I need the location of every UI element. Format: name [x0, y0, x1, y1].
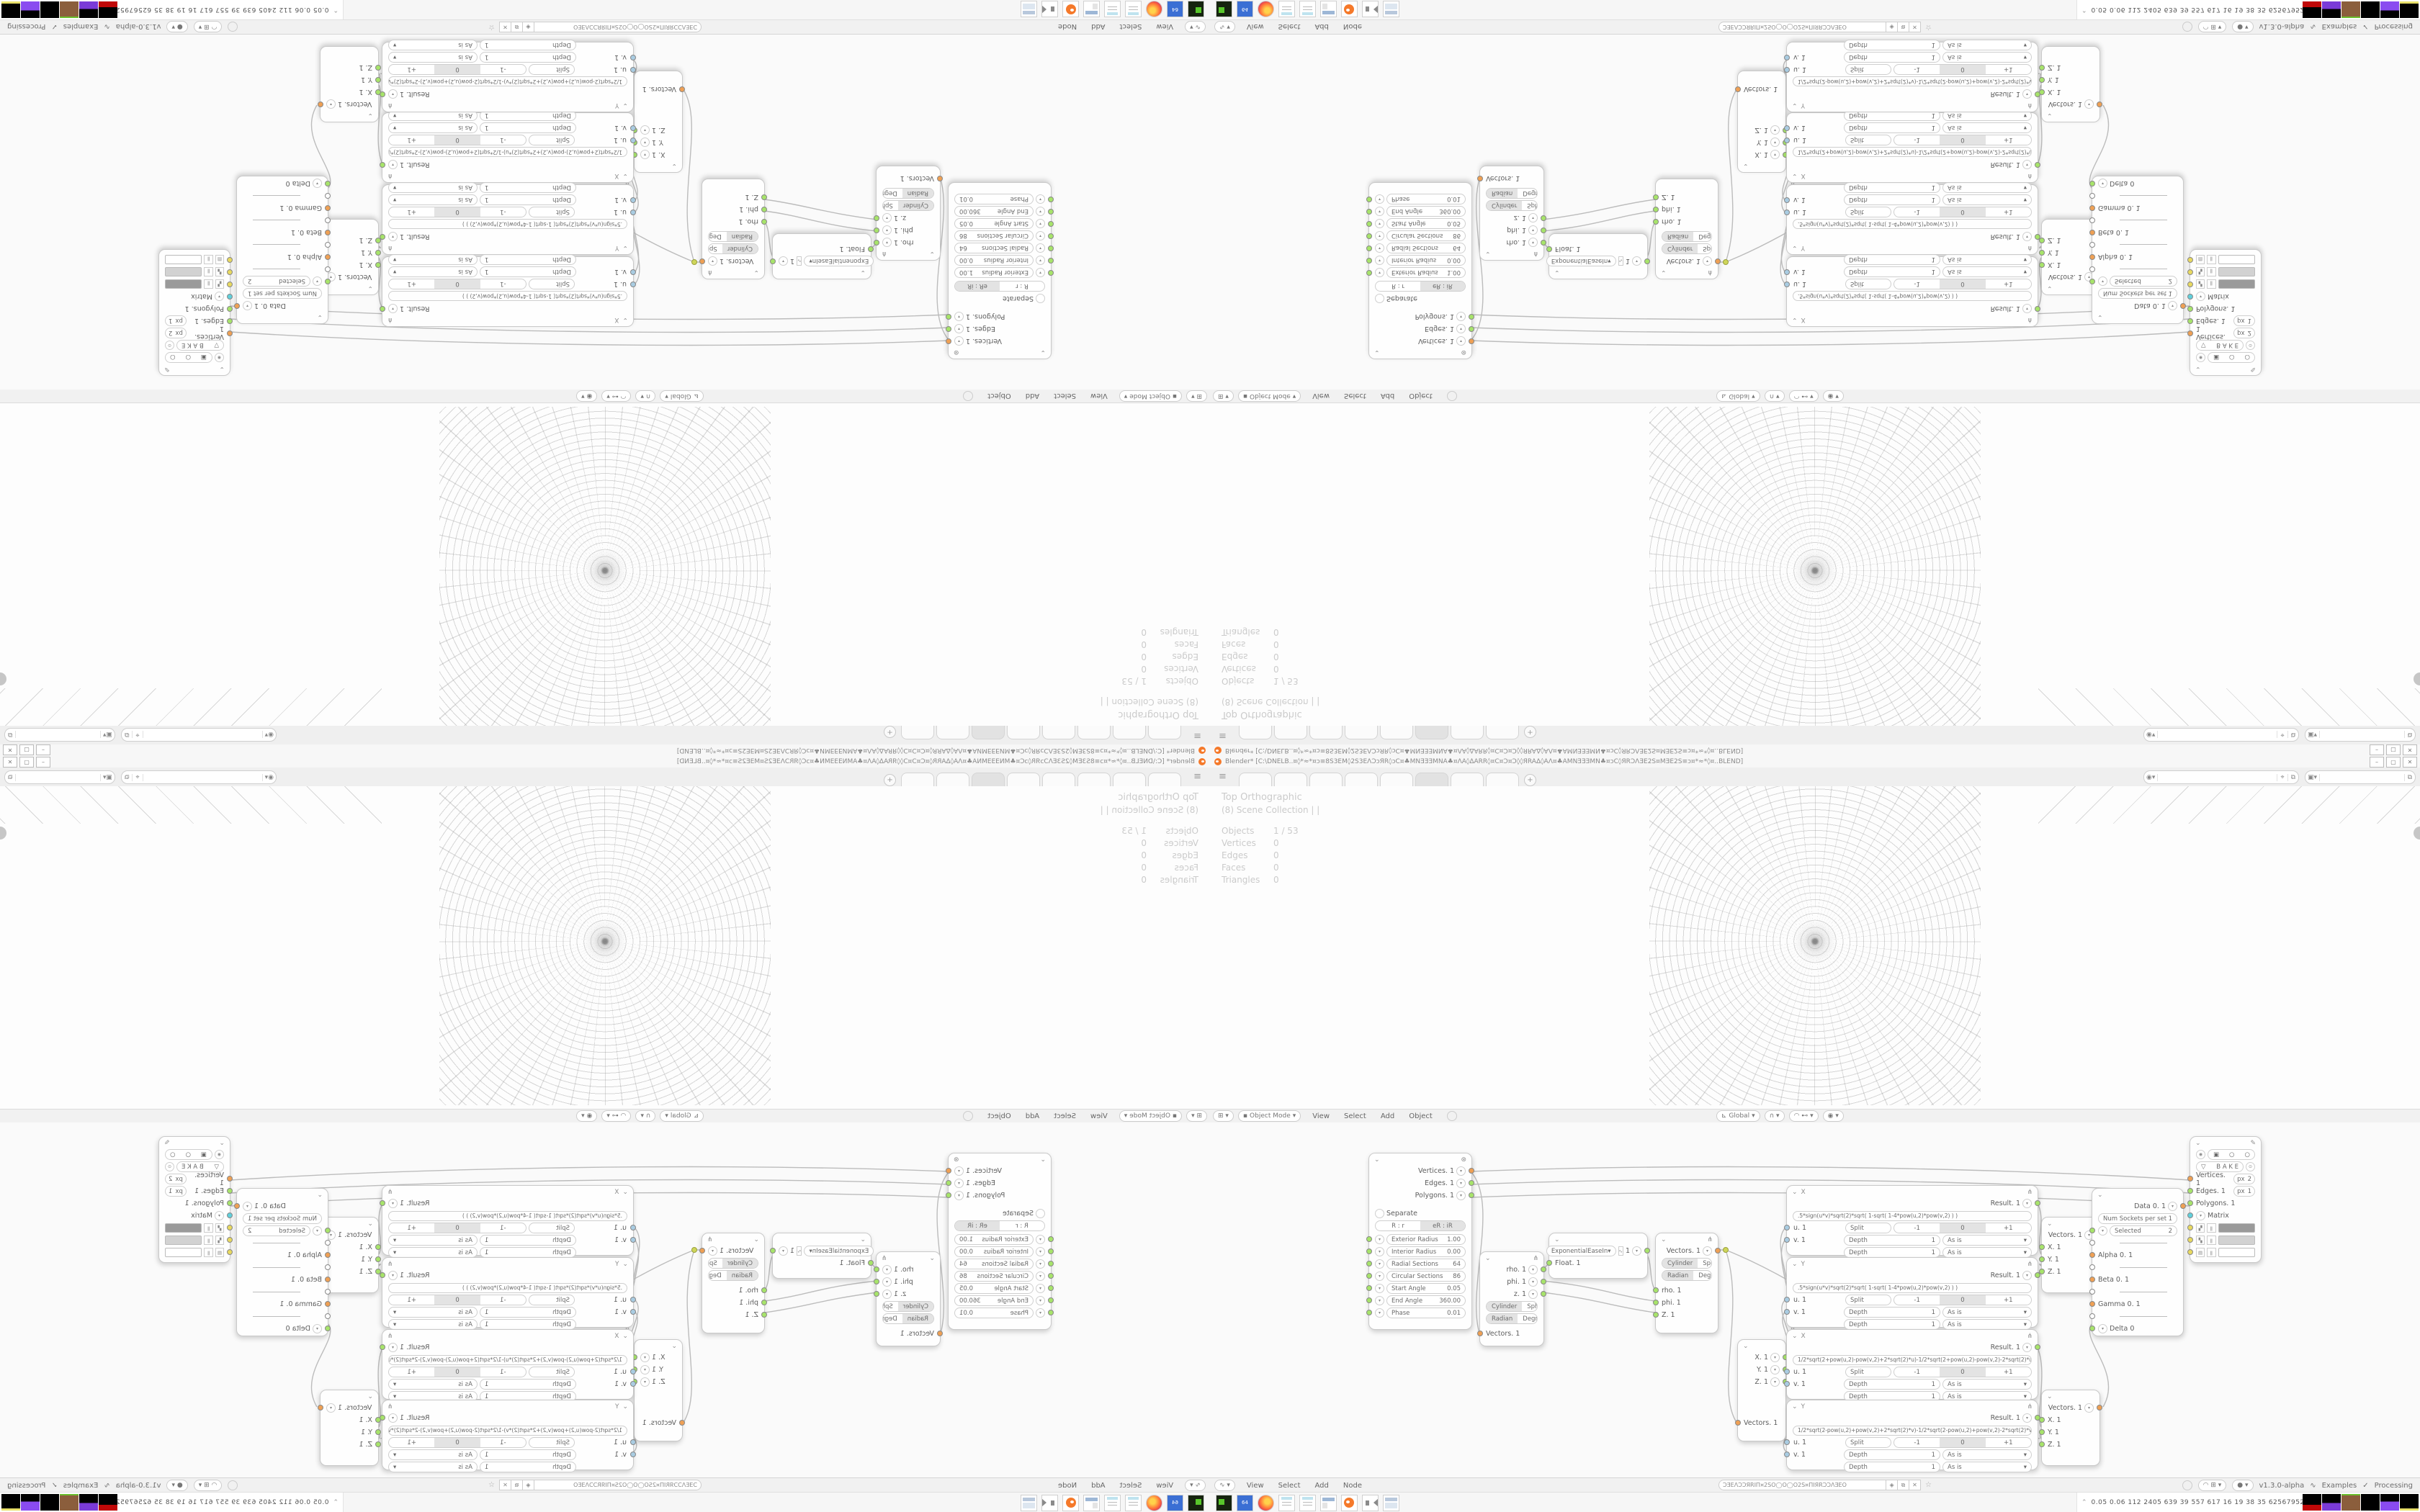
histogram-thumb[interactable] — [2322, 1494, 2341, 1511]
node-socket[interactable] — [1048, 1236, 1054, 1242]
node-socket[interactable] — [1477, 1331, 1483, 1336]
minimize-button[interactable]: – — [2370, 757, 2384, 768]
depth-field[interactable]: Depth1 — [480, 1449, 576, 1460]
socket-menu-button[interactable]: ▾ — [388, 89, 398, 99]
value-stepper[interactable]: ▾ — [1036, 1235, 1045, 1244]
viewport-3d[interactable]: Top Orthographic (8) Scene Collection | … — [0, 786, 1210, 1109]
copy-icon[interactable]: ⧉ — [122, 732, 133, 739]
face-color-icon[interactable]: ▤ — [215, 255, 224, 264]
node-socket[interactable] — [2039, 77, 2045, 83]
socket-menu-button[interactable]: ▾ — [779, 256, 788, 266]
value-stepper[interactable]: ▾ — [1036, 268, 1045, 277]
node-socket[interactable] — [2187, 1200, 2193, 1206]
sidebar-toggle[interactable] — [0, 827, 6, 840]
node-vector-join-b[interactable]: ⌄ Vectors. 1▾ X. 1 Y. 1 Z. 1 — [320, 1390, 379, 1466]
node-socket[interactable] — [2039, 1441, 2045, 1447]
node-socket[interactable] — [1469, 1192, 1474, 1198]
node-socket[interactable] — [325, 266, 331, 272]
depth-field[interactable]: Depth1 — [1844, 1462, 1940, 1472]
torus-param[interactable]: Exterior Radius1.00 — [954, 1234, 1034, 1245]
node-socket[interactable] — [318, 1405, 323, 1410]
node-socket[interactable] — [2039, 262, 2045, 268]
node-socket[interactable] — [1469, 338, 1474, 344]
depth-field[interactable]: Depth1 — [480, 266, 576, 277]
display-mode-buttons[interactable]: ▣○○⌂ — [165, 1149, 212, 1160]
shield-icon[interactable]: ◈ — [522, 22, 534, 32]
menu-view[interactable]: View — [1312, 392, 1330, 400]
edge-width-field[interactable]: px1 — [2233, 315, 2255, 326]
node-socket[interactable] — [1366, 1248, 1372, 1254]
socket-menu-button[interactable]: ▾ — [1770, 138, 1780, 147]
editor-type-button[interactable]: ⊞ ▾ — [1213, 1110, 1234, 1122]
gizmo-toggle[interactable]: ◉ ▾ — [576, 390, 597, 402]
depth-field[interactable]: Depth1 — [480, 1247, 576, 1258]
node-tree-selector[interactable]: ƆƎEΛƆƆЯRIΠ¤2SO◯O◯O2S¤ΠIЯRƆƆΛƎEO ◈ ⧉ ✕ ☆ — [1718, 22, 1932, 32]
node-socket[interactable] — [1366, 221, 1372, 227]
node-formula-y1[interactable]: ⌄Y⋔ Result. 1▾ .5*sign(u*v)*sqrt(2)*sqrt… — [382, 184, 634, 255]
node-socket[interactable] — [380, 1200, 385, 1206]
wrap-dropdown[interactable]: As is▾ — [388, 1449, 478, 1460]
gear-icon[interactable]: ⊛ — [954, 1156, 959, 1164]
split-toggle[interactable]: Split — [1845, 1437, 1891, 1448]
split-toggle[interactable]: Split — [1845, 207, 1891, 217]
workspace-tab[interactable] — [1486, 773, 1519, 787]
node-socket[interactable] — [1653, 1300, 1659, 1305]
node-socket[interactable] — [380, 1344, 385, 1350]
node-socket[interactable] — [630, 269, 636, 275]
viewlayer-selector[interactable]: ▣▾ ⧉ — [4, 770, 115, 784]
workspace-tab[interactable] — [936, 725, 969, 739]
torus-param[interactable]: Interior Radius0.00 — [1386, 255, 1466, 266]
taskbar-media-icon[interactable] — [1383, 1, 1399, 17]
collapse-chevron-icon[interactable]: ⌄ — [1792, 1333, 1798, 1340]
taskbar-floppy-icon[interactable]: 64 — [1167, 1, 1183, 17]
minimize-button[interactable]: – — [36, 744, 50, 755]
taskbar-notepad-icon[interactable] — [1104, 1, 1121, 17]
node-socket[interactable] — [630, 197, 636, 203]
menu-add[interactable]: Add — [1381, 392, 1394, 400]
pin-icon[interactable]: ⌖ — [2277, 732, 2287, 739]
edge-width-field[interactable]: px1 — [2233, 1186, 2255, 1197]
socket-menu-button[interactable]: ▾ — [2084, 1403, 2094, 1413]
menu-select[interactable]: Select — [1119, 1482, 1142, 1490]
search-circle-icon[interactable] — [963, 391, 973, 401]
node-socket[interactable] — [2035, 162, 2040, 168]
socket-menu-button[interactable]: ▾ — [954, 1166, 964, 1176]
menu-view[interactable]: View — [1156, 1482, 1173, 1490]
coord-mode-switch[interactable]: CylinderSphere — [1662, 243, 1712, 254]
depth-field[interactable]: Depth1 — [1844, 1379, 1940, 1390]
node-socket[interactable] — [630, 1225, 636, 1230]
torus-param[interactable]: End Angle360.00 — [1386, 206, 1466, 217]
point-size-field[interactable]: px2 — [2233, 328, 2255, 338]
histogram-thumb[interactable] — [2341, 1, 2360, 18]
wrap-dropdown[interactable]: As is▾ — [388, 122, 478, 133]
node-socket[interactable] — [2089, 1240, 2095, 1246]
node-socket[interactable] — [1784, 1309, 1790, 1315]
curve-icon[interactable]: ∿ — [1618, 1246, 1623, 1256]
taskbar-blender-icon[interactable] — [1062, 1495, 1079, 1511]
depth-field[interactable]: Depth1 — [480, 194, 576, 205]
pin-icon[interactable]: ☆ — [1925, 23, 1932, 31]
node-socket[interactable] — [1653, 1287, 1659, 1293]
node-socket[interactable] — [2187, 1176, 2193, 1182]
node-socket[interactable] — [1469, 1180, 1474, 1186]
value-stepper[interactable]: ▾ — [215, 292, 224, 301]
list-icon[interactable]: ǁ — [205, 279, 213, 289]
node-socket[interactable] — [325, 205, 331, 211]
node-socket[interactable] — [2089, 205, 2095, 211]
histogram-thumb[interactable] — [1, 1494, 20, 1511]
add-workspace-button[interactable]: + — [1524, 774, 1536, 786]
socket-menu-button[interactable]: ▾ — [1703, 256, 1712, 266]
angle-mode-switch[interactable]: RadianDegree — [1486, 1313, 1538, 1324]
collapse-chevron-icon[interactable]: ⌄ — [317, 314, 323, 321]
depth-field[interactable]: Depth1 — [480, 52, 576, 63]
node-socket[interactable] — [1541, 215, 1546, 221]
close-button[interactable]: ✕ — [2403, 757, 2417, 768]
collapse-chevron-icon[interactable]: ⌄ — [1374, 1156, 1380, 1164]
angle-mode-switch[interactable]: RadianDegree — [882, 1313, 934, 1324]
collapse-chevron-icon[interactable]: ⌄ — [1743, 1343, 1749, 1350]
editor-type-button[interactable]: ∿ ▾ — [1185, 1480, 1206, 1491]
node-socket[interactable] — [1469, 1168, 1474, 1174]
value-stepper[interactable]: ▾ — [1036, 207, 1045, 216]
taskbar-notepad-icon[interactable] — [1278, 1, 1295, 17]
viewlayer-selector[interactable]: ▣▾ ⧉ — [2305, 728, 2416, 742]
display-mode-buttons[interactable]: ▣○○⌂ — [2208, 1149, 2255, 1160]
socket-menu-button[interactable]: ▾ — [243, 1202, 252, 1211]
taskbar-firefox-icon[interactable] — [1146, 1495, 1162, 1511]
collapse-chevron-icon[interactable]: ⌄ — [753, 269, 759, 276]
node-socket[interactable] — [770, 1248, 776, 1254]
examples-label[interactable]: Examples — [63, 23, 99, 31]
scene-selector[interactable]: ◉▾ ⌖ ⧉ — [2143, 770, 2299, 784]
axis-segment[interactable]: -10+1 — [1894, 1437, 2032, 1448]
node-socket[interactable] — [874, 1266, 879, 1272]
copy-icon[interactable]: ⧉ — [2287, 774, 2298, 781]
viewport-3d[interactable]: Top Orthographic (8) Scene Collection | … — [1210, 786, 2420, 1109]
node-formula-y1[interactable]: ⌄Y⋔ Result. 1▾ .5*sign(u*v)*sqrt(2)*sqrt… — [382, 1257, 634, 1328]
separate-toggle[interactable] — [1036, 294, 1045, 303]
node-socket[interactable] — [375, 77, 381, 83]
node-socket[interactable] — [1653, 1312, 1659, 1318]
workspace-tab[interactable] — [1007, 773, 1040, 787]
node-list-input[interactable]: ⌄ Data 0. 1▾ Num Sockets per set1 ▾Selec… — [2092, 176, 2184, 324]
collapse-chevron-icon[interactable]: ⌄ — [622, 1189, 628, 1196]
node-viewer-draw[interactable]: ⌄✎ ◉▣○○⌂ ▽B A K E⊙ Vertices. 1px2 Edges.… — [158, 1136, 230, 1263]
node-socket[interactable] — [2187, 1249, 2193, 1255]
node-socket[interactable] — [1048, 1310, 1054, 1315]
menu-view[interactable]: View — [1090, 392, 1108, 400]
socket-menu-button[interactable]: ▾ — [640, 150, 650, 159]
node-socket[interactable] — [630, 67, 636, 73]
node-socket[interactable] — [227, 282, 233, 287]
node-socket[interactable] — [874, 215, 879, 221]
num-sockets-field[interactable]: Num Sockets per set1 — [243, 288, 322, 299]
node-socket[interactable] — [1048, 270, 1054, 276]
depth-field[interactable]: Depth1 — [1844, 1307, 1940, 1318]
taskbar-blender-icon[interactable] — [1341, 1, 1358, 17]
coord-mode-switch[interactable]: CylinderSphere — [1486, 200, 1538, 211]
node-formula-x2[interactable]: ⌄X⋔ Result. 1▾ 1/2*sqrt(2+pow(u,2)-pow(v… — [382, 112, 634, 183]
node-easing[interactable]: ⌄ ExponentialEaseIn▾∿1▾ Float. 1 — [1549, 1233, 1648, 1279]
menu-view[interactable]: View — [1312, 1112, 1330, 1120]
copy-icon[interactable]: ⧉ — [2287, 732, 2298, 739]
node-socket[interactable] — [630, 138, 636, 143]
face-color-icon[interactable]: ▤ — [215, 1248, 224, 1257]
socket-menu-button[interactable]: ▾ — [708, 256, 717, 266]
node-socket[interactable] — [630, 1452, 636, 1457]
display-mode-buttons[interactable]: ▣○○⌂ — [2208, 352, 2255, 363]
histogram-thumb[interactable] — [1, 1, 20, 18]
search-circle-icon[interactable] — [963, 1111, 973, 1121]
node-vector-split[interactable]: ⌄ X. 1▾ Y. 1▾ Z. 1▾ Vectors. 1 — [634, 71, 683, 173]
node-socket[interactable] — [679, 1420, 685, 1426]
value-stepper[interactable]: ▾ — [1036, 231, 1045, 240]
node-socket[interactable] — [2187, 282, 2193, 287]
angle-mode-switch[interactable]: RadianDegree — [1486, 188, 1538, 199]
node-socket[interactable] — [1653, 207, 1659, 212]
socket-menu-button[interactable]: ▾ — [2168, 1202, 2177, 1211]
node-formula-x2[interactable]: ⌄X⋔ Result. 1▾ 1/2*sqrt(2+pow(u,2)-pow(v… — [1786, 112, 2038, 183]
torus-param[interactable]: Circular Sections86 — [954, 1271, 1034, 1282]
depth-field[interactable]: Depth1 — [480, 1235, 576, 1246]
value-stepper[interactable]: ▾ — [2196, 292, 2205, 301]
list-icon[interactable]: ǁ — [2207, 1248, 2215, 1257]
collapse-chevron-icon[interactable]: ⌄ — [622, 173, 628, 180]
viewlayer-selector[interactable]: ▣▾ ⧉ — [4, 728, 115, 742]
separate-toggle[interactable] — [1036, 1209, 1045, 1218]
num-sockets-field[interactable]: Num Sockets per set1 — [2098, 1213, 2177, 1224]
wrap-dropdown[interactable]: As is▾ — [1942, 40, 2032, 50]
value-stepper[interactable]: ▾ — [2098, 1324, 2107, 1333]
wrap-dropdown[interactable]: As is▾ — [388, 40, 478, 50]
depth-field[interactable]: Depth1 — [1844, 52, 1940, 63]
gizmo-toggle[interactable]: ◉ ▾ — [1823, 390, 1844, 402]
collapse-chevron-icon[interactable]: ⌄ — [622, 1261, 628, 1268]
node-socket[interactable] — [1546, 1260, 1552, 1266]
gear-icon[interactable]: ⊛ — [954, 349, 959, 356]
point-size-field[interactable]: px2 — [165, 328, 187, 338]
node-socket[interactable] — [1048, 1261, 1054, 1266]
formula-field[interactable]: 1/2*sqrt(2+pow(u,2)-pow(v,2)+2*sqrt(2)*u… — [1793, 1355, 2032, 1365]
node-socket[interactable] — [2187, 257, 2193, 263]
socket-menu-button[interactable]: ▾ — [2168, 301, 2177, 310]
node-socket[interactable] — [380, 162, 385, 168]
collapse-chevron-icon[interactable]: ⌄ — [1792, 1261, 1798, 1268]
value-stepper[interactable]: ▾ — [1036, 256, 1045, 265]
value-stepper[interactable]: ▾ — [1036, 1284, 1045, 1293]
workspace-tab[interactable] — [1345, 725, 1378, 739]
torus-param[interactable]: Start Angle0.05 — [954, 1283, 1034, 1294]
socket-menu-button[interactable]: ▾ — [882, 238, 892, 247]
node-tree-selector[interactable]: ƆƎEΛƆƆЯRIΠ¤2SO◯O◯O2S¤ΠIЯRƆƆΛƎEO ◈ ⧉ ✕ ☆ — [488, 1480, 702, 1490]
node-torus[interactable]: ⌄⊛ Vertices. 1▾ Edges. 1▾ Polygons. 1▾ S… — [948, 182, 1052, 359]
menu-select[interactable]: Select — [1344, 392, 1366, 400]
value-stepper[interactable]: ▾ — [1036, 1308, 1045, 1318]
add-workspace-button[interactable]: + — [884, 726, 896, 738]
pin-icon[interactable]: ⌖ — [2277, 774, 2287, 781]
wrap-dropdown[interactable]: As is▾ — [388, 1319, 478, 1330]
node-socket[interactable] — [1541, 1266, 1546, 1272]
collapse-chevron-icon[interactable]: ⌄ — [219, 366, 225, 373]
scene-selector[interactable]: ◉▾ ⌖ ⧉ — [121, 728, 277, 742]
workspace-tab[interactable] — [1309, 773, 1343, 787]
taskbar-window-icon[interactable] — [1083, 1, 1100, 17]
axis-segment[interactable]: -10+1 — [1894, 207, 2032, 217]
wrap-dropdown[interactable]: As is▾ — [1942, 1247, 2032, 1258]
node-socket[interactable] — [2035, 1200, 2040, 1206]
socket-menu-button[interactable]: ▾ — [388, 160, 398, 169]
status-circle-icon[interactable] — [2182, 1480, 2192, 1490]
node-formula-y2[interactable]: ⌄Y⋔ Result. 1▾ 1/2*sqrt(2-pow(u,2)+pow(v… — [1786, 42, 2038, 112]
node-socket[interactable] — [2097, 102, 2102, 107]
node-socket[interactable] — [1541, 228, 1546, 233]
socket-menu-button[interactable]: ▾ — [1528, 1277, 1538, 1287]
collapse-chevron-icon[interactable]: ⌄ — [1554, 1236, 1560, 1243]
mode-selector[interactable]: ▪ Object Mode ▾ — [1119, 390, 1182, 402]
coord-mode-switch[interactable]: CylinderSphere — [882, 1301, 934, 1312]
face-color-swatch[interactable] — [165, 255, 202, 264]
add-workspace-button[interactable]: + — [884, 774, 896, 786]
depth-field[interactable]: Depth1 — [1844, 266, 1940, 277]
histogram-thumb[interactable] — [2361, 1494, 2380, 1511]
angle-mode-switch[interactable]: RadianDegree — [708, 231, 758, 242]
node-socket[interactable] — [2089, 242, 2095, 248]
viewport-3d[interactable]: Top Orthographic (8) Scene Collection | … — [0, 403, 1210, 726]
socket-menu-button[interactable]: ▾ — [882, 225, 892, 235]
torus-param[interactable]: Phase0.01 — [954, 1308, 1034, 1318]
torus-param[interactable]: Exterior Radius1.00 — [954, 267, 1034, 278]
torus-param[interactable]: Circular Sections86 — [954, 230, 1034, 241]
node-socket[interactable] — [679, 86, 685, 92]
edge-width-field[interactable]: px1 — [165, 1186, 187, 1197]
bake-button[interactable]: ▽B A K E — [2196, 340, 2244, 351]
workspace-tab[interactable] — [1113, 725, 1146, 739]
list-icon[interactable]: ǁ — [205, 267, 213, 276]
value-stepper[interactable]: ▾ — [1375, 219, 1384, 228]
node-vector-polar-in[interactable]: ⌄⋔ Vectors. 1▾ CylinderSphere RadianDegr… — [702, 1233, 765, 1333]
value-stepper[interactable]: ▾ — [1036, 194, 1045, 204]
node-socket[interactable] — [2039, 1429, 2045, 1435]
taskbar-floppy-icon[interactable]: 64 — [1167, 1495, 1183, 1511]
node-socket[interactable] — [2187, 306, 2193, 312]
list-icon[interactable]: ǁ — [2207, 279, 2215, 289]
vertex-color-icon[interactable]: ▞ — [215, 279, 224, 289]
formula-field[interactable]: 1/2*sqrt(2-pow(u,2)+pow(v,2)+2*sqrt(2)*v… — [1793, 77, 2032, 87]
node-socket[interactable] — [1366, 1261, 1372, 1266]
torus-param[interactable]: Circular Sections86 — [1386, 230, 1466, 241]
orientation-selector[interactable]: ⊾ Global ▾ — [1716, 1110, 1760, 1122]
collapse-chevron-icon[interactable]: ⌄ — [2195, 366, 2201, 373]
workspace-tab[interactable] — [1309, 725, 1343, 739]
node-socket[interactable] — [227, 294, 233, 300]
socket-menu-button[interactable]: ▾ — [2084, 99, 2094, 109]
collapse-chevron-icon[interactable]: ⌄ — [2195, 1140, 2201, 1147]
node-socket[interactable] — [2089, 1252, 2095, 1258]
node-socket[interactable] — [375, 1244, 381, 1250]
workspace-tab[interactable] — [1451, 725, 1484, 739]
value-stepper[interactable]: ▾ — [1375, 1235, 1384, 1244]
node-socket[interactable] — [2089, 1277, 2095, 1282]
value-stepper[interactable]: ▾ — [2196, 1211, 2205, 1220]
split-toggle[interactable]: Split — [529, 1367, 575, 1377]
socket-menu-button[interactable]: ▾ — [2022, 232, 2032, 241]
viewlayer-selector[interactable]: ▣▾ ⧉ — [2305, 770, 2416, 784]
depth-field[interactable]: Depth1 — [1844, 1449, 1940, 1460]
node-socket[interactable] — [1784, 210, 1790, 215]
node-socket[interactable] — [234, 1203, 240, 1209]
node-socket[interactable] — [227, 257, 233, 263]
collapse-chevron-icon[interactable]: ⌄ — [860, 269, 866, 276]
split-toggle[interactable]: Split — [529, 207, 575, 217]
axis-segment[interactable]: -10+1 — [388, 1437, 526, 1448]
proportional-edit-toggle[interactable]: ◠ ⊷ ▾ — [601, 1110, 631, 1122]
depth-field[interactable]: Depth1 — [1844, 1319, 1940, 1330]
status-circle-icon[interactable] — [228, 22, 238, 32]
node-socket[interactable] — [227, 318, 233, 324]
socket-menu-button[interactable]: ▾ — [882, 1277, 892, 1287]
menu-add[interactable]: Add — [1091, 1482, 1105, 1490]
coord-mode-switch[interactable]: CylinderSphere — [1662, 1258, 1712, 1269]
value-stepper[interactable]: ▾ — [313, 276, 322, 286]
node-formula-y2[interactable]: ⌄Y⋔ Result. 1▾ 1/2*sqrt(2-pow(u,2)+pow(v… — [382, 42, 634, 112]
edge-color-swatch[interactable] — [2218, 1236, 2256, 1245]
close-button[interactable]: ✕ — [2403, 744, 2417, 755]
node-socket[interactable] — [1366, 233, 1372, 239]
workspace-tab[interactable] — [1486, 725, 1519, 739]
node-socket[interactable] — [227, 306, 233, 312]
node-socket[interactable] — [1048, 221, 1054, 227]
bake-settings-button[interactable]: ⊙ — [2246, 1162, 2255, 1171]
node-socket[interactable] — [325, 242, 331, 248]
face-color-swatch[interactable] — [2218, 255, 2256, 264]
node-socket[interactable] — [227, 1176, 233, 1182]
collapse-chevron-icon[interactable]: ⌄ — [1792, 1189, 1798, 1196]
vertex-color-icon[interactable]: ▞ — [215, 1223, 224, 1233]
workspace-tab[interactable] — [1042, 773, 1075, 787]
curve-icon[interactable]: ∿ — [1618, 256, 1623, 266]
node-socket[interactable] — [1541, 1279, 1546, 1284]
easing-mode-dropdown[interactable]: ExponentialEaseIn▾ — [1546, 256, 1616, 266]
node-socket[interactable] — [630, 210, 636, 215]
value-stepper[interactable]: ▾ — [1375, 1259, 1384, 1269]
node-vector-split[interactable]: ⌄ X. 1▾ Y. 1▾ Z. 1▾ Vectors. 1 — [1737, 71, 1786, 173]
gear-icon[interactable]: ⊛ — [1461, 349, 1466, 356]
histogram-thumb[interactable] — [40, 1494, 59, 1511]
histogram-thumb[interactable] — [2341, 1494, 2360, 1511]
formula-field[interactable]: .5*sign(u*v)*sqrt(2)*sqrt( 1-sqrt( 1-4*p… — [388, 220, 627, 230]
histogram-thumb[interactable] — [2380, 1, 2399, 18]
node-socket[interactable] — [2180, 1203, 2186, 1209]
axis-segment[interactable]: -10+1 — [388, 1295, 526, 1305]
node-socket[interactable] — [946, 1168, 951, 1174]
point-size-field[interactable]: px2 — [165, 1174, 187, 1184]
mode-selector[interactable]: ▪ Object Mode ▾ — [1238, 1110, 1301, 1122]
histogram-thumb[interactable] — [2400, 1494, 2419, 1511]
wrap-dropdown[interactable]: As is▾ — [388, 1247, 478, 1258]
formula-field[interactable]: 1/2*sqrt(2+pow(u,2)-pow(v,2)+2*sqrt(2)*u… — [388, 148, 627, 158]
edge-color-icon[interactable]: ▚ — [2196, 267, 2205, 276]
torus-param[interactable]: Radial Sections64 — [954, 1259, 1034, 1269]
wrap-dropdown[interactable]: As is▾ — [388, 254, 478, 265]
torus-param[interactable]: Radial Sections64 — [1386, 1259, 1466, 1269]
wrap-dropdown[interactable]: As is▾ — [1942, 1235, 2032, 1246]
edge-color-icon[interactable]: ▚ — [215, 267, 224, 276]
node-socket[interactable] — [630, 125, 636, 131]
curve-icon[interactable]: ∿ — [797, 1246, 802, 1256]
